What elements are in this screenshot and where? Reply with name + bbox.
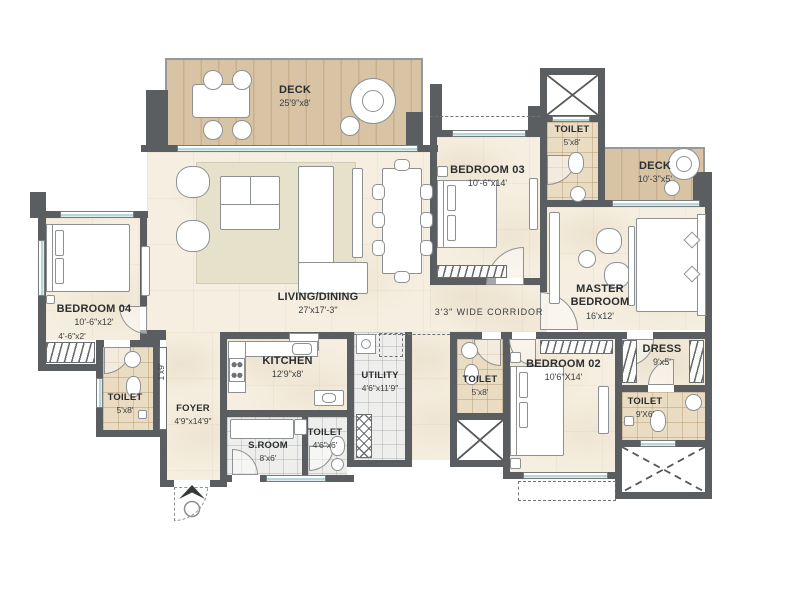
armchair <box>176 166 210 198</box>
kitchen-sink <box>292 343 312 355</box>
wall-pillar <box>30 192 46 218</box>
room-dims: 4'9"x14'9" <box>167 416 219 426</box>
toilet-basin <box>685 394 702 411</box>
utility-duct <box>356 414 372 458</box>
dining-chair <box>394 271 410 283</box>
wall <box>347 460 412 467</box>
room-name: DRESS <box>632 343 692 356</box>
sofa <box>298 166 334 266</box>
sroom-bed <box>230 419 294 439</box>
projection-line <box>430 116 540 117</box>
window <box>266 475 326 482</box>
wall <box>450 332 457 467</box>
wardrobe-strip <box>141 246 150 296</box>
room-name: BEDROOM 02 <box>516 358 611 371</box>
ledge-dims: 1'x9' <box>156 350 168 394</box>
room-label-living-dining: LIVING/DINING 27'x17'-3" <box>258 291 378 316</box>
room-name: KITCHEN <box>240 355 335 368</box>
room-dims: 10'-6"x12' <box>48 317 140 328</box>
wall <box>705 197 712 499</box>
dining-chair <box>420 240 433 256</box>
room-label-sroom: S.ROOM 8'x6' <box>234 440 302 463</box>
room-dims: 10'6"X14' <box>516 372 611 383</box>
wall-pillar <box>406 112 423 148</box>
deck-chair <box>232 120 252 140</box>
armchair <box>176 220 210 252</box>
room-name: FOYER <box>167 403 219 415</box>
room-label-toilet-sroom: TOILET 4'6"x6' <box>300 427 350 450</box>
window <box>612 200 700 207</box>
room-dims: 5'x8' <box>100 405 150 415</box>
toilet-basin <box>570 186 586 202</box>
window <box>38 240 45 296</box>
wardrobe <box>437 265 507 278</box>
room-label-toilet-bed04: TOILET 5'x8' <box>100 392 150 415</box>
room-dims: 10'-3"x5' <box>617 174 693 185</box>
room-dims: 9'X6' <box>618 409 672 419</box>
dining-chair <box>420 184 433 200</box>
pillow <box>55 258 64 284</box>
room-dims: 5'x8' <box>455 387 505 397</box>
room-dims: 8'x6' <box>234 453 302 463</box>
toilet-basin <box>124 351 141 368</box>
dining-chair <box>420 212 433 228</box>
pillow <box>447 215 456 241</box>
shaft-bottom-right <box>622 447 705 492</box>
wall <box>450 460 510 467</box>
wall <box>220 332 354 339</box>
window <box>552 116 590 122</box>
room-label-bedroom-03: BEDROOM 03 10'-6"x14' <box>440 164 535 189</box>
sink-basin <box>322 393 336 403</box>
toilet-basin <box>461 342 478 359</box>
room-name: TOILET <box>100 392 150 404</box>
room-label-kitchen: KITCHEN 12'9"x8' <box>240 355 335 380</box>
room-dims: 5'x8' <box>545 137 599 147</box>
wall <box>96 430 160 437</box>
dining-chair <box>372 184 385 200</box>
room-dims: 12'9"x8' <box>240 369 335 380</box>
wall <box>503 332 510 479</box>
wardrobe-strip <box>549 212 560 304</box>
bed-headboard <box>697 214 706 316</box>
shaft-mid <box>457 420 503 460</box>
window <box>640 440 676 447</box>
corridor-label: 3'3" WIDE CORRIDOR <box>430 307 548 317</box>
room-label-bedroom-02: BEDROOM 02 10'6"X14' <box>516 358 611 383</box>
nightstand <box>510 458 521 469</box>
shaft-top <box>547 75 598 115</box>
armchair <box>596 228 622 254</box>
room-name: MASTER BEDROOM <box>560 283 640 310</box>
room-label-bedroom-04: BEDROOM 04 10'-6"x12' <box>48 303 140 328</box>
deck-side-table <box>340 116 360 136</box>
room-name: TOILET <box>545 124 599 136</box>
room-label-utility: UTILITY 4'6"x11'9" <box>351 370 409 393</box>
wall <box>405 332 412 467</box>
wall <box>220 332 227 487</box>
wall <box>598 68 605 207</box>
deck-lounge-chair-inner <box>362 90 384 112</box>
wall <box>38 364 103 371</box>
toilet-basin <box>331 458 344 471</box>
window <box>60 211 134 218</box>
bed-headboard <box>46 224 53 292</box>
room-label-deck-right: DECK 10'-3"x5' <box>617 160 693 185</box>
room-dims: 4'6"x11'9" <box>351 383 409 393</box>
room-dims: 4'6"x6' <box>300 440 350 450</box>
wall <box>540 68 605 75</box>
appliance-outline <box>379 333 403 357</box>
room-name: BEDROOM 04 <box>48 303 140 316</box>
wardrobe <box>46 342 95 363</box>
deck-chair <box>203 120 223 140</box>
room-label-toilet-bed02: TOILET 5'x8' <box>455 374 505 397</box>
room-label-dress: DRESS 9'x5' <box>632 343 692 368</box>
coffee-table-line <box>220 204 280 205</box>
wall-pillar <box>146 90 168 150</box>
room-name: UTILITY <box>351 370 409 382</box>
room-name: DECK <box>245 84 345 97</box>
dining-chair <box>372 212 385 228</box>
wardrobe-strip <box>598 386 609 434</box>
room-dims: 16'x12' <box>560 311 640 322</box>
coffee-table-line <box>250 176 251 204</box>
room-dims: 9'x5' <box>632 357 692 368</box>
projection-outline <box>518 481 616 501</box>
pillow <box>55 230 64 256</box>
console-table <box>352 168 363 258</box>
room-label-deck-main: DECK 25'9"x8' <box>245 84 345 109</box>
washing-machine-drum <box>361 339 371 349</box>
window <box>177 145 418 152</box>
passage-floor <box>412 332 450 460</box>
bed <box>437 180 497 248</box>
dining-chair <box>394 159 410 171</box>
toilet-wc <box>568 152 584 174</box>
room-dims: 10'-6"x14' <box>440 178 535 189</box>
window <box>452 130 526 137</box>
wall <box>220 410 354 417</box>
wall <box>653 332 712 339</box>
bedroom-04-wardrobe-dims: 4'-6"x2' <box>46 331 98 341</box>
bed-headboard <box>437 180 444 248</box>
room-name: TOILET <box>300 427 350 439</box>
side-table <box>578 250 596 268</box>
room-name: TOILET <box>455 374 505 386</box>
room-name: BEDROOM 03 <box>440 164 535 177</box>
wall <box>450 413 510 420</box>
wall <box>536 332 627 339</box>
floor-plan: DECK 25'9"x8' LIVING/DINING 27'x17'-3" B… <box>0 0 800 600</box>
room-name: DECK <box>617 160 693 173</box>
wall <box>160 430 167 487</box>
pillow <box>519 402 528 428</box>
room-label-toilet-master: TOILET 9'X6' <box>618 396 672 419</box>
wall <box>430 137 437 285</box>
wardrobe <box>540 340 613 354</box>
room-label-toilet-top: TOILET 5'x8' <box>545 124 599 147</box>
room-name: LIVING/DINING <box>258 291 378 304</box>
entry-arrow-icon <box>172 484 212 518</box>
sofa-chaise <box>298 262 368 294</box>
room-dims: 27'x17'-3" <box>258 305 378 316</box>
wall-pillar <box>693 172 712 202</box>
deck-chair <box>203 70 223 90</box>
room-name: TOILET <box>618 396 672 408</box>
room-label-foyer: FOYER 4'9"x14'9" <box>167 403 219 426</box>
dining-table <box>382 168 422 274</box>
room-dims: 25'9"x8' <box>245 98 345 109</box>
window <box>523 472 608 479</box>
room-label-master-bedroom: MASTER BEDROOM 16'x12' <box>560 283 640 322</box>
wall-pillar <box>430 84 442 130</box>
room-name: S.ROOM <box>234 440 302 452</box>
wall <box>615 492 712 499</box>
dining-chair <box>372 240 385 256</box>
wall <box>540 130 547 292</box>
